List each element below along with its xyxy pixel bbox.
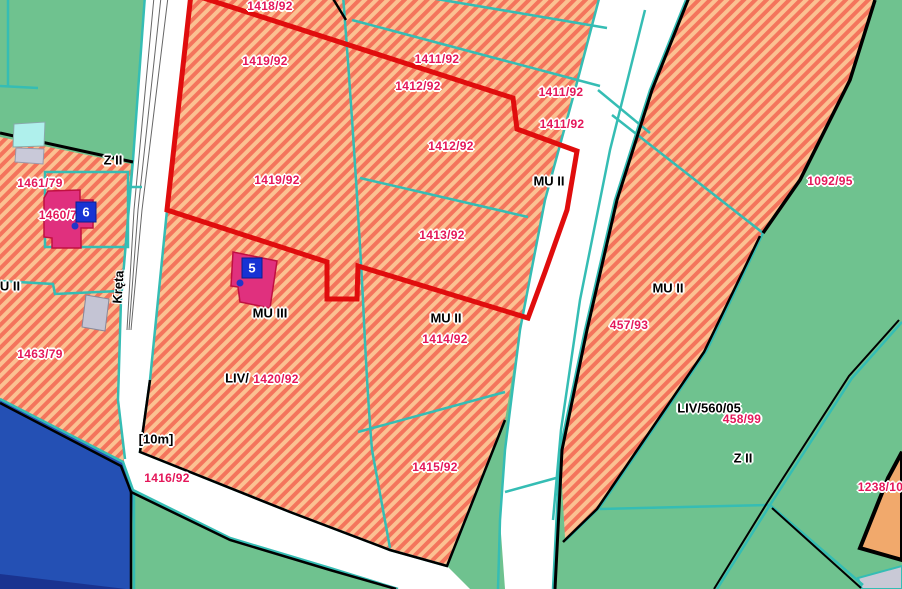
parcel-label: 1460/7	[39, 208, 78, 222]
map-marker-6[interactable]: 6	[76, 202, 97, 223]
building-cyan	[13, 122, 45, 147]
parcel-label: 1238/100	[858, 480, 902, 494]
zone-label: LIV/	[225, 371, 249, 386]
map-canvas[interactable]: 1418/92 1419/92 1411/92 1412/92 1411/92 …	[0, 0, 902, 589]
zone-label: Z II	[734, 451, 753, 466]
street-label: Kręta	[109, 270, 126, 304]
zone-label: LIV/560/05	[677, 401, 741, 416]
zone-label: MU II	[430, 311, 461, 326]
parcel-label: 1414/92	[422, 332, 467, 346]
parcel-label: 1411/92	[539, 85, 584, 99]
address-point-6	[72, 223, 79, 230]
parcel-label: 1461/79	[17, 176, 62, 190]
zone-label: MU III	[253, 306, 288, 321]
building-gray-road	[82, 295, 109, 331]
parcel-label: 1420/92	[253, 372, 298, 386]
map-marker-5[interactable]: 5	[242, 258, 263, 279]
zone-label: MU II	[652, 281, 683, 296]
parcel-label: 1412/92	[428, 139, 473, 153]
parcel-label: 1413/92	[419, 228, 464, 242]
parcel-label: 1419/92	[242, 54, 287, 68]
parcel-label: 457/93	[610, 318, 649, 332]
zone-label: Z II	[104, 153, 123, 168]
parcel-label: 1092/95	[807, 174, 852, 188]
parcel-label: 1412/92	[395, 79, 440, 93]
parcel-label: 1419/92	[254, 173, 299, 187]
zone-label: MU II	[533, 174, 564, 189]
map-layers	[0, 0, 902, 589]
parcel-label: 1415/92	[412, 460, 457, 474]
parcel-label: 1418/92	[247, 0, 292, 13]
parcel-label: 1411/92	[540, 117, 585, 131]
parcel-label: 1463/79	[17, 347, 62, 361]
parcel-label: 1416/92	[144, 471, 189, 485]
address-point-5	[237, 280, 244, 287]
building-gray-top	[15, 148, 44, 164]
road-width-label: [10m]	[139, 432, 174, 447]
zone-label-clipped: U II	[0, 279, 20, 294]
parcel-label: 1411/92	[415, 52, 460, 66]
